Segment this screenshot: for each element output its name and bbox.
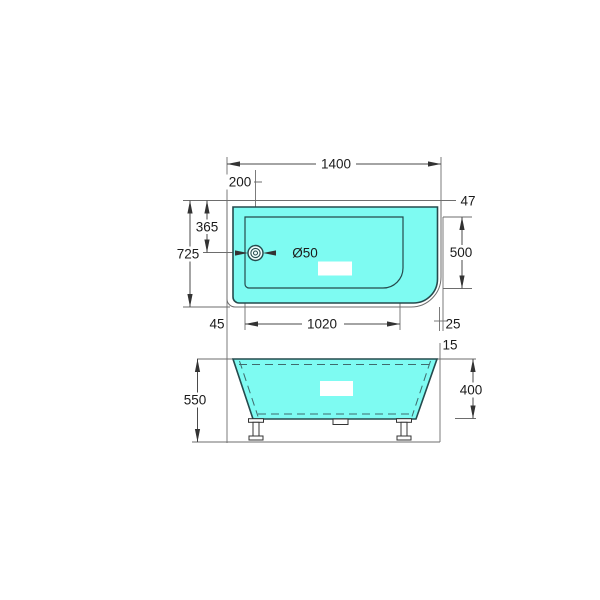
dim-rim-gap-left: 45 [209,317,224,332]
dim-label-15: 15 [442,338,457,353]
dim-overall-height: 550 [181,359,210,442]
right-foot [397,419,412,440]
watermark-box [320,381,353,396]
dim-label-25: 25 [445,317,460,332]
drain [248,246,263,261]
dim-label-500: 500 [450,245,473,260]
side-view [233,359,437,440]
drain-outlet [333,419,348,425]
dim-label-725: 725 [177,247,200,262]
dim-overall-depth: 725 [174,201,203,308]
dim-rim-gap-top: 47 [456,194,482,209]
bathtub-technical-drawing: 1400 200 47 365 725 500 Ø50 [0,0,600,600]
dim-label-1020: 1020 [307,317,337,332]
dim-label-365: 365 [196,220,219,235]
dim-basin-length: 1020 [245,317,400,332]
dim-label-400: 400 [460,383,483,398]
drawing-sheet: 1400 200 47 365 725 500 Ø50 [0,0,600,600]
left-foot [249,419,264,440]
top-view [227,201,441,308]
watermark-box [318,262,352,276]
dim-label-47: 47 [460,194,475,209]
dim-rim-gap-right: 25 [445,317,460,332]
dim-label-45: 45 [209,317,224,332]
dim-drain-offset-y: 365 [192,201,222,253]
dim-rim-overhang: 15 [442,338,457,353]
dim-label-d50: Ø50 [292,246,318,261]
dim-label-550: 550 [184,393,207,408]
dim-body-height: 400 [457,359,487,419]
dim-basin-depth: 500 [447,217,476,289]
dim-label-200: 200 [229,175,252,190]
dim-label-1400: 1400 [321,157,351,172]
dim-drain-offset-x: 200 [226,175,254,190]
dim-overall-width: 1400 [227,157,441,172]
